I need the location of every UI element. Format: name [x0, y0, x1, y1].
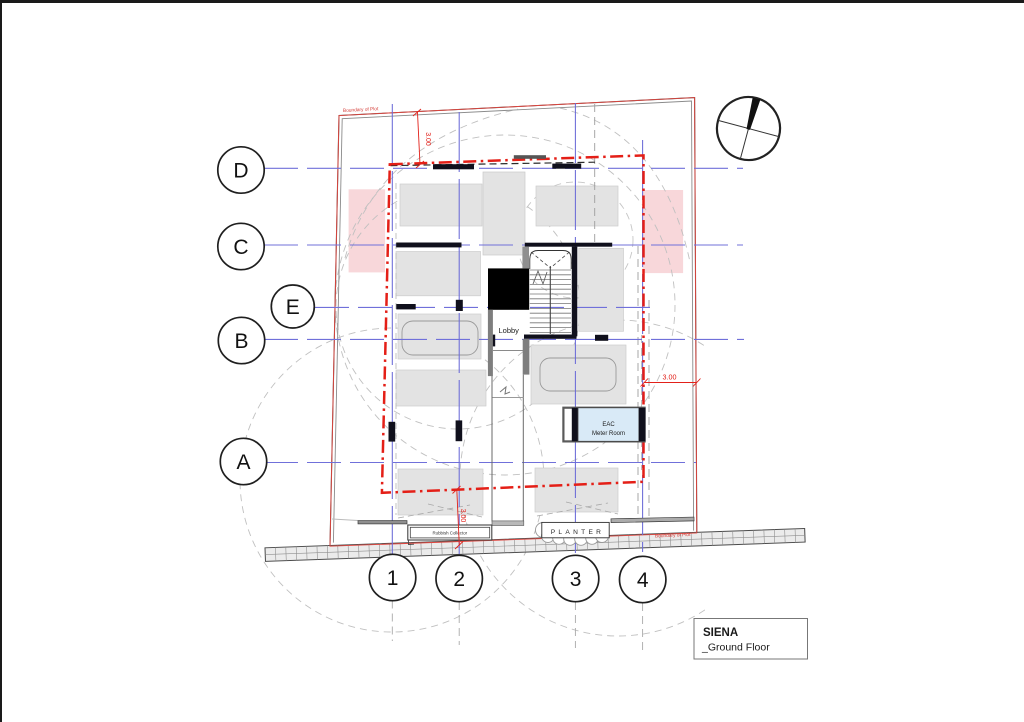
svg-text:PLANTER: PLANTER: [551, 529, 605, 536]
svg-text:SIENA: SIENA: [703, 627, 738, 639]
svg-text:EAC: EAC: [602, 422, 615, 428]
svg-text:D: D: [233, 160, 248, 183]
svg-text:3: 3: [570, 568, 582, 591]
svg-text:B: B: [234, 330, 248, 353]
svg-text:_Ground Floor: _Ground Floor: [701, 642, 770, 654]
svg-text:Rubbish Collector: Rubbish Collector: [432, 531, 467, 536]
svg-text:E: E: [286, 296, 300, 319]
svg-text:3.00: 3.00: [459, 509, 466, 523]
svg-text:3.00: 3.00: [424, 132, 431, 146]
svg-text:C: C: [233, 236, 248, 259]
svg-text:3.00: 3.00: [663, 373, 677, 382]
svg-text:4: 4: [637, 569, 649, 592]
svg-text:Lobby: Lobby: [499, 326, 520, 335]
svg-text:A: A: [236, 451, 250, 474]
svg-text:1: 1: [387, 567, 399, 590]
svg-text:Meter Room: Meter Room: [592, 431, 625, 437]
svg-text:2: 2: [453, 568, 465, 591]
